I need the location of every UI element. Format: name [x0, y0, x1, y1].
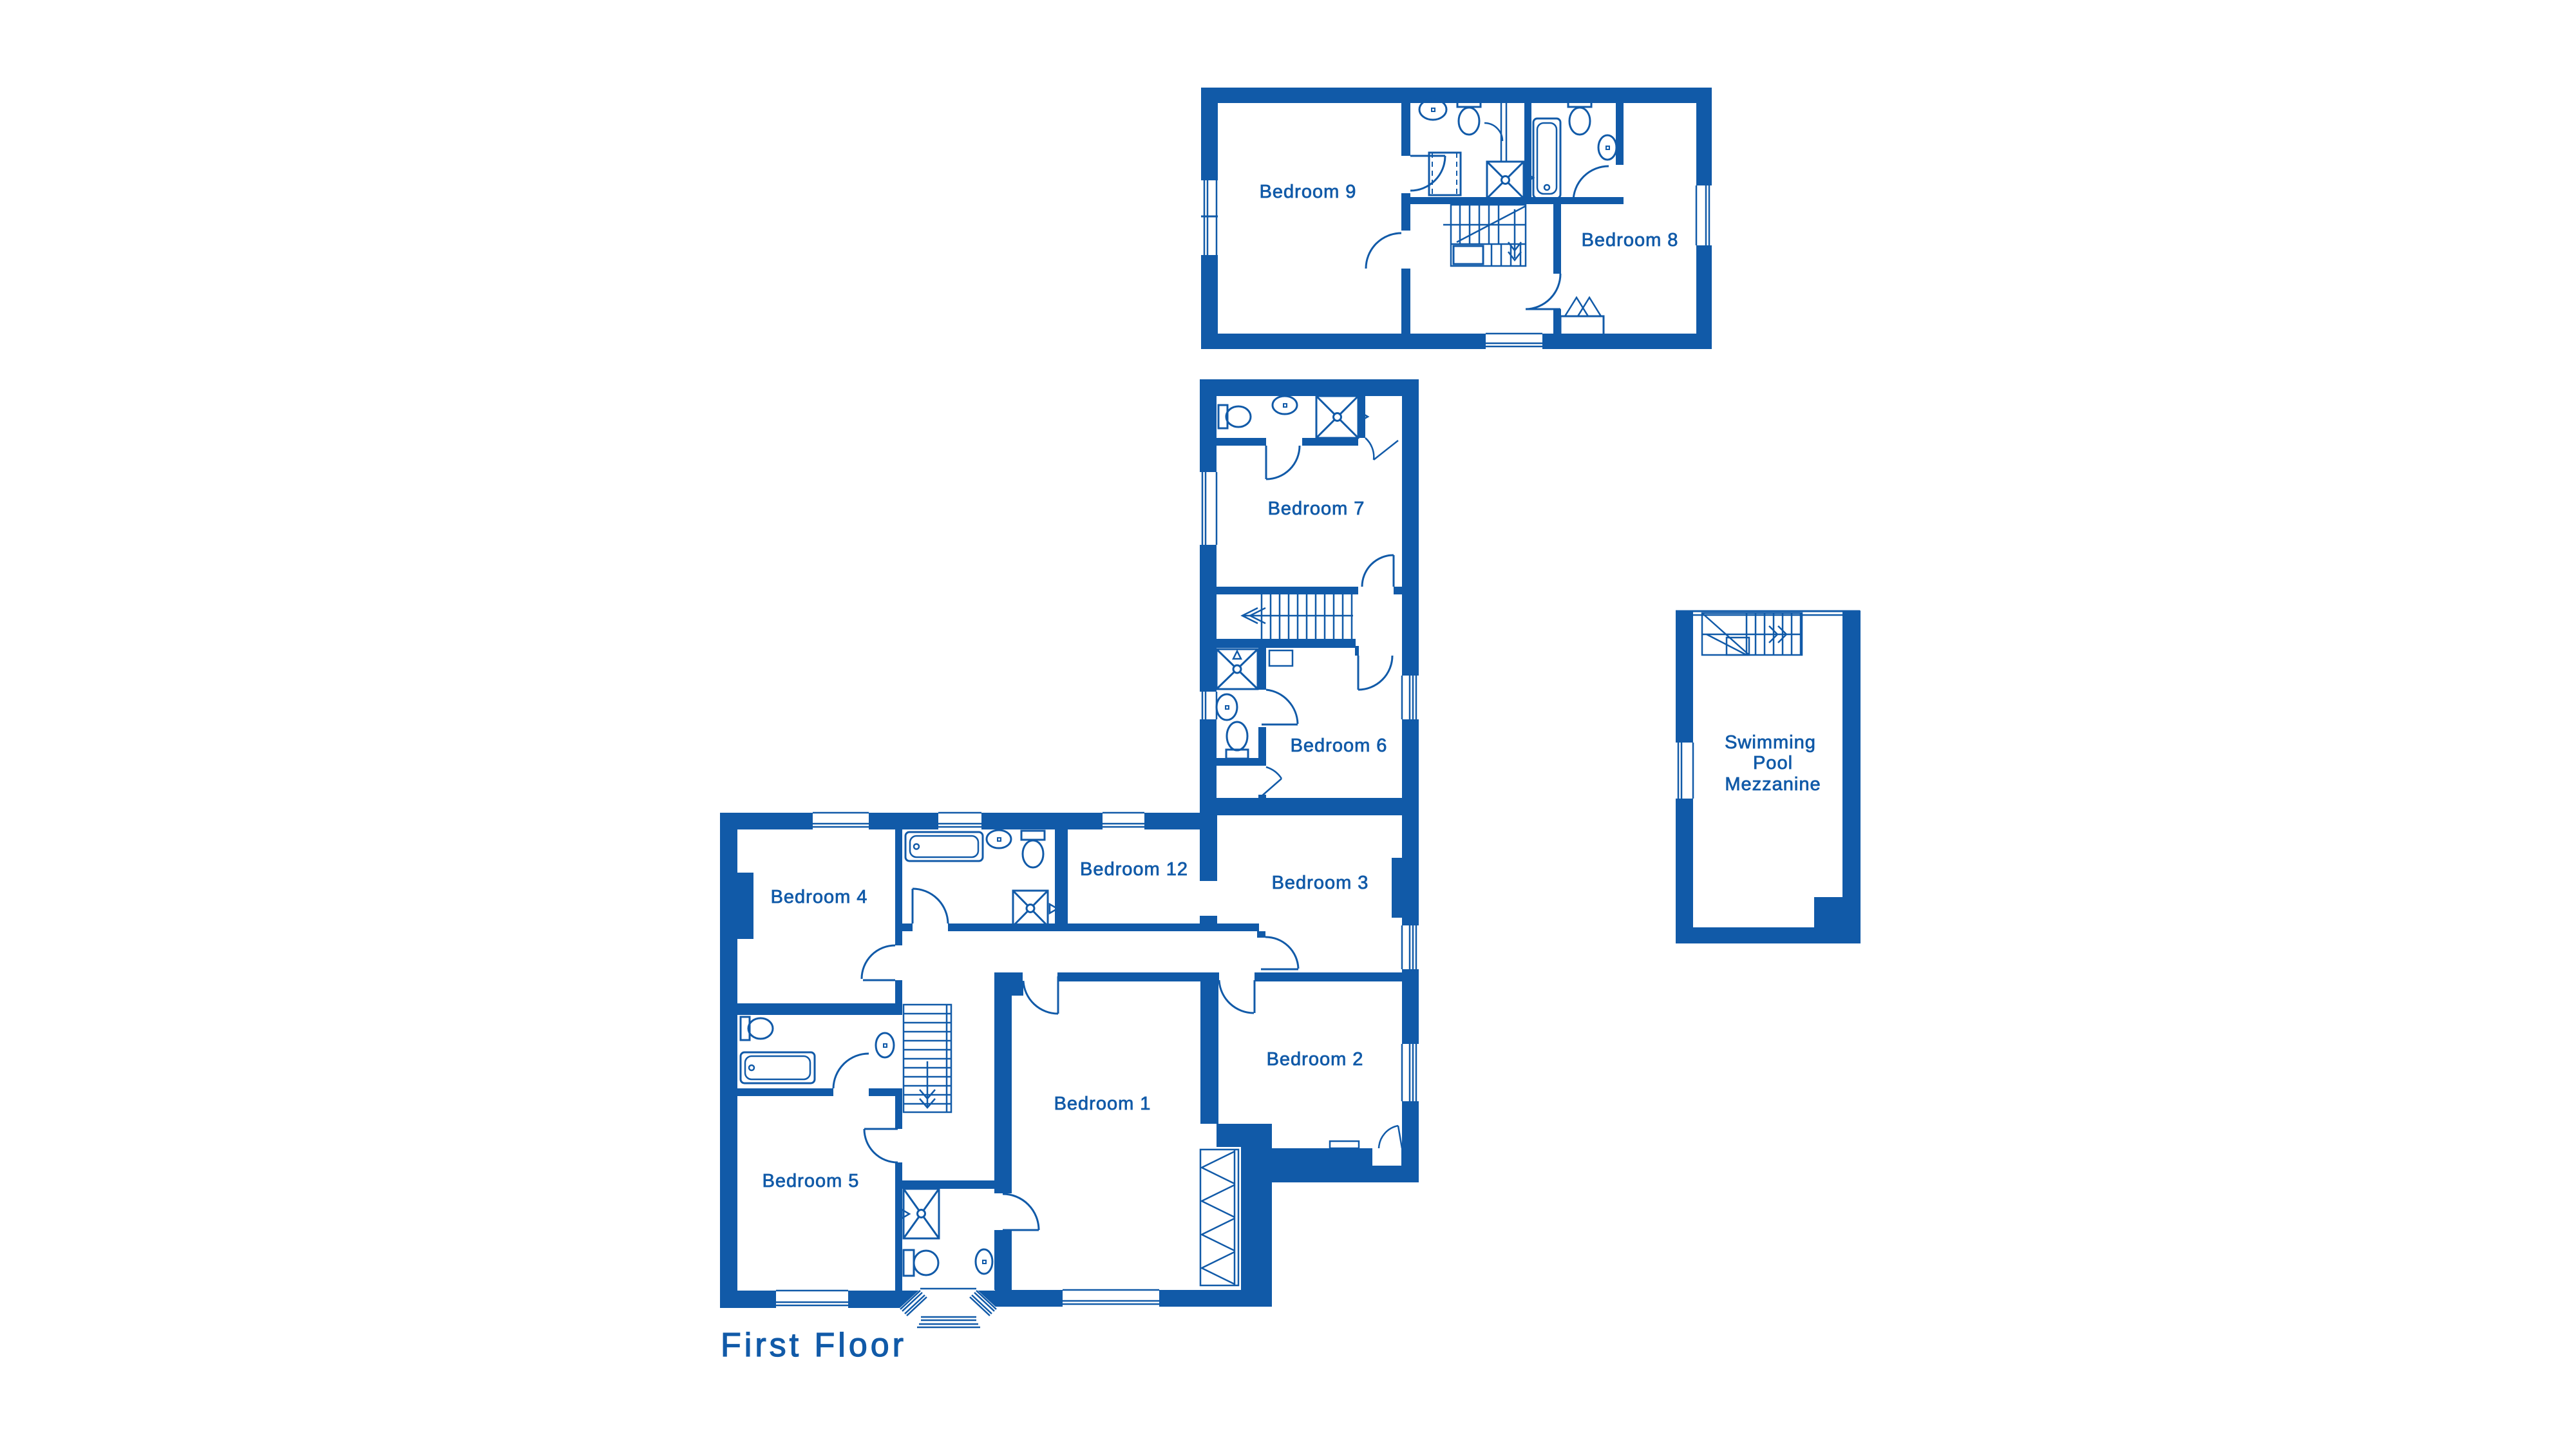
- svg-text:Bedroom 3: Bedroom 3: [1272, 873, 1369, 893]
- svg-text:First Floor: First Floor: [721, 1327, 907, 1364]
- svg-text:Bedroom 8: Bedroom 8: [1582, 230, 1679, 251]
- svg-text:Bedroom 6: Bedroom 6: [1291, 735, 1388, 756]
- svg-text:Bedroom 4: Bedroom 4: [771, 887, 868, 907]
- svg-text:Bedroom 2: Bedroom 2: [1267, 1049, 1364, 1070]
- svg-text:Mezzanine: Mezzanine: [1725, 774, 1821, 795]
- svg-text:Bedroom 5: Bedroom 5: [762, 1171, 860, 1191]
- svg-text:Bedroom 7: Bedroom 7: [1268, 498, 1365, 519]
- svg-text:Swimming: Swimming: [1725, 732, 1816, 753]
- svg-text:Bedroom 9: Bedroom 9: [1260, 182, 1357, 202]
- svg-text:Pool: Pool: [1753, 753, 1793, 773]
- svg-text:Bedroom 1: Bedroom 1: [1054, 1094, 1151, 1114]
- svg-text:Bedroom 12: Bedroom 12: [1080, 859, 1188, 880]
